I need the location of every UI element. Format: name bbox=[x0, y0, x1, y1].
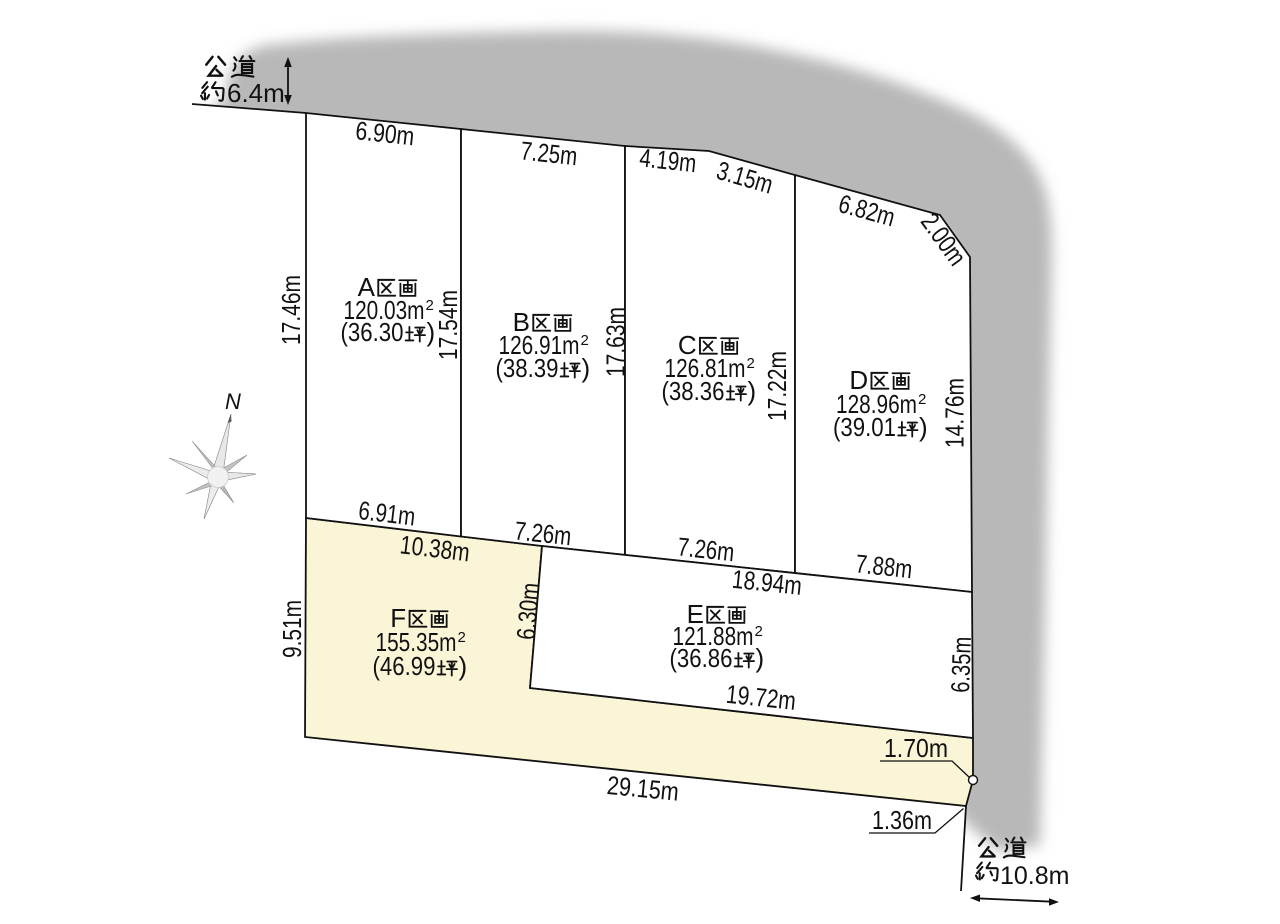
svg-text:7.88m: 7.88m bbox=[854, 548, 914, 584]
svg-text:4.19m: 4.19m bbox=[638, 142, 698, 178]
svg-text:10.8m: 10.8m bbox=[1000, 862, 1069, 890]
svg-text:): ) bbox=[919, 412, 928, 442]
svg-text:17.54m: 17.54m bbox=[433, 290, 463, 360]
svg-text:): ) bbox=[582, 353, 591, 383]
svg-text:17.46m: 17.46m bbox=[276, 275, 306, 345]
svg-text:(46.99: (46.99 bbox=[373, 651, 436, 681]
svg-text:6.4m: 6.4m bbox=[227, 78, 285, 108]
svg-text:2: 2 bbox=[747, 355, 755, 372]
svg-text:(36.30: (36.30 bbox=[341, 317, 404, 347]
svg-text:(38.39: (38.39 bbox=[496, 353, 559, 383]
svg-text:(36.86: (36.86 bbox=[670, 643, 733, 673]
svg-text:7.26m: 7.26m bbox=[676, 531, 736, 567]
svg-text:17.22m: 17.22m bbox=[762, 351, 792, 421]
svg-text:): ) bbox=[459, 651, 468, 681]
svg-text:1.70m: 1.70m bbox=[884, 733, 948, 763]
svg-text:6.30m: 6.30m bbox=[511, 582, 546, 641]
svg-text:): ) bbox=[756, 643, 765, 673]
svg-text:1.36m: 1.36m bbox=[872, 805, 932, 835]
svg-text:): ) bbox=[427, 317, 436, 347]
svg-text:2: 2 bbox=[458, 629, 466, 646]
svg-text:(38.36: (38.36 bbox=[662, 376, 725, 406]
svg-text:7.25m: 7.25m bbox=[519, 135, 579, 171]
svg-text:): ) bbox=[748, 376, 757, 406]
svg-text:N: N bbox=[225, 389, 241, 414]
svg-text:6.90m: 6.90m bbox=[354, 115, 416, 151]
svg-text:6.35m: 6.35m bbox=[945, 636, 977, 693]
svg-text:14.76m: 14.76m bbox=[940, 378, 970, 448]
svg-text:2: 2 bbox=[426, 297, 434, 314]
svg-text:(39.01: (39.01 bbox=[833, 412, 896, 442]
svg-text:2: 2 bbox=[918, 391, 926, 408]
svg-text:7.26m: 7.26m bbox=[513, 515, 573, 551]
svg-text:9.51m: 9.51m bbox=[277, 600, 307, 658]
svg-text:2: 2 bbox=[581, 332, 589, 349]
svg-text:17.63m: 17.63m bbox=[601, 307, 631, 377]
svg-text:2: 2 bbox=[755, 623, 763, 640]
